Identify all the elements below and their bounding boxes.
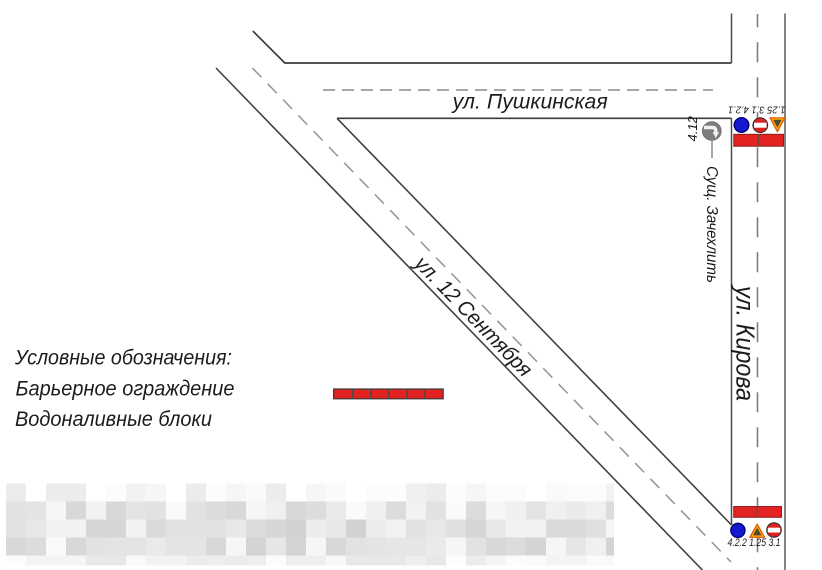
svg-text:Условные обозначения:: Условные обозначения: [14, 346, 232, 370]
svg-text:Сущ. Зачехлить: Сущ. Зачехлить [703, 166, 720, 283]
svg-text:4.12: 4.12 [685, 115, 700, 141]
svg-text:ул. Кирова: ул. Кирова [731, 284, 761, 401]
svg-text:Водоналивные блоки: Водоналивные блоки [15, 407, 212, 431]
svg-text:Барьерное ограждение: Барьерное ограждение [16, 377, 235, 401]
svg-text:ул. 12 Сентября: ул. 12 Сентября [409, 251, 537, 382]
svg-text:ул. Пушкинская: ул. Пушкинская [451, 91, 608, 114]
svg-text:4.2.2 1.25 3.1: 4.2.2 1.25 3.1 [728, 537, 781, 549]
svg-text:1.25 3.1 4.2.1: 1.25 3.1 4.2.1 [728, 104, 786, 116]
